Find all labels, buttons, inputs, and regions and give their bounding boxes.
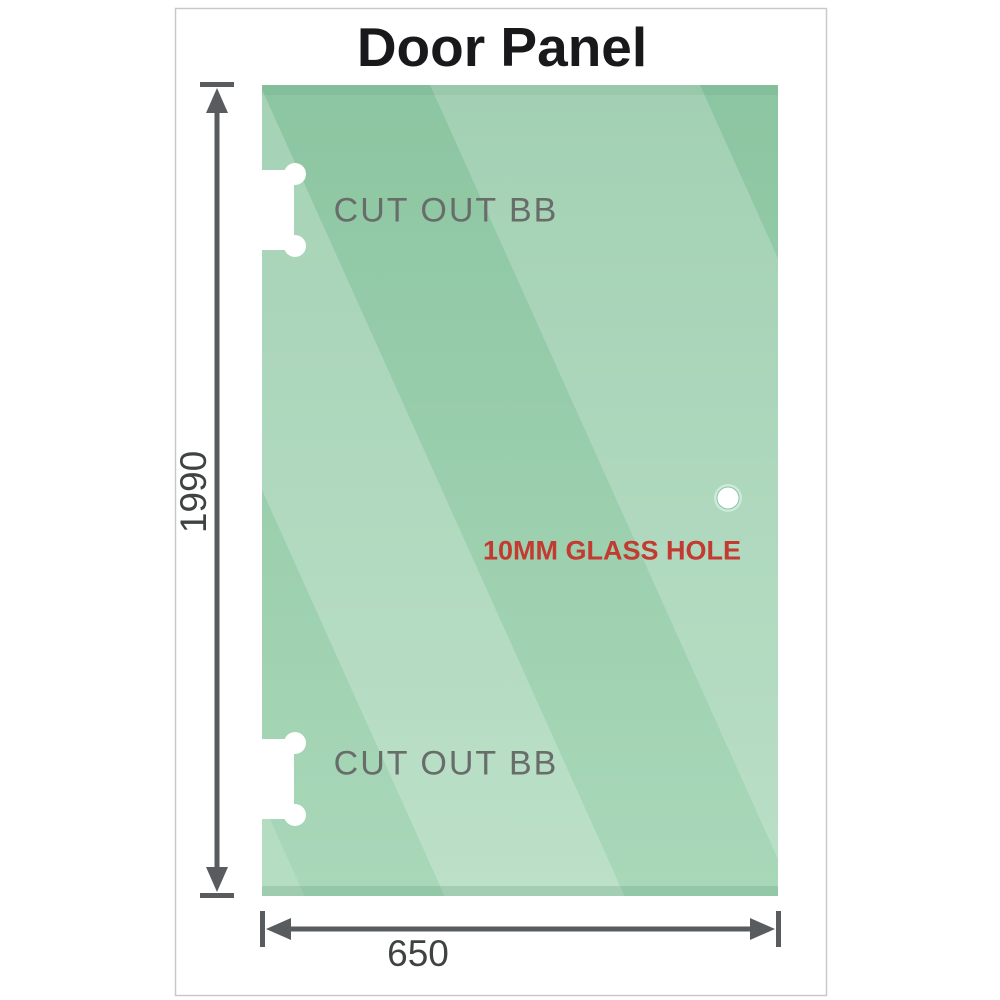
diagram-canvas [0,0,1000,1000]
door-panel-diagram: Door Panel CUT OUT BB CUT OUT BB 10MM GL… [0,0,1000,1000]
page-title: Door Panel [357,15,647,79]
bottom-cutout-label: CUT OUT BB [334,745,559,784]
top-cutout-label: CUT OUT BB [334,192,559,231]
glass-hole-label: 10MM GLASS HOLE [483,536,741,567]
width-dimension-arrow [260,911,781,947]
glass-bottom-edge [262,886,778,896]
height-dimension-label: 1990 [173,451,215,533]
glass-hole-icon [714,484,742,512]
width-dimension-label: 650 [387,933,449,975]
glass-top-edge [262,85,778,95]
